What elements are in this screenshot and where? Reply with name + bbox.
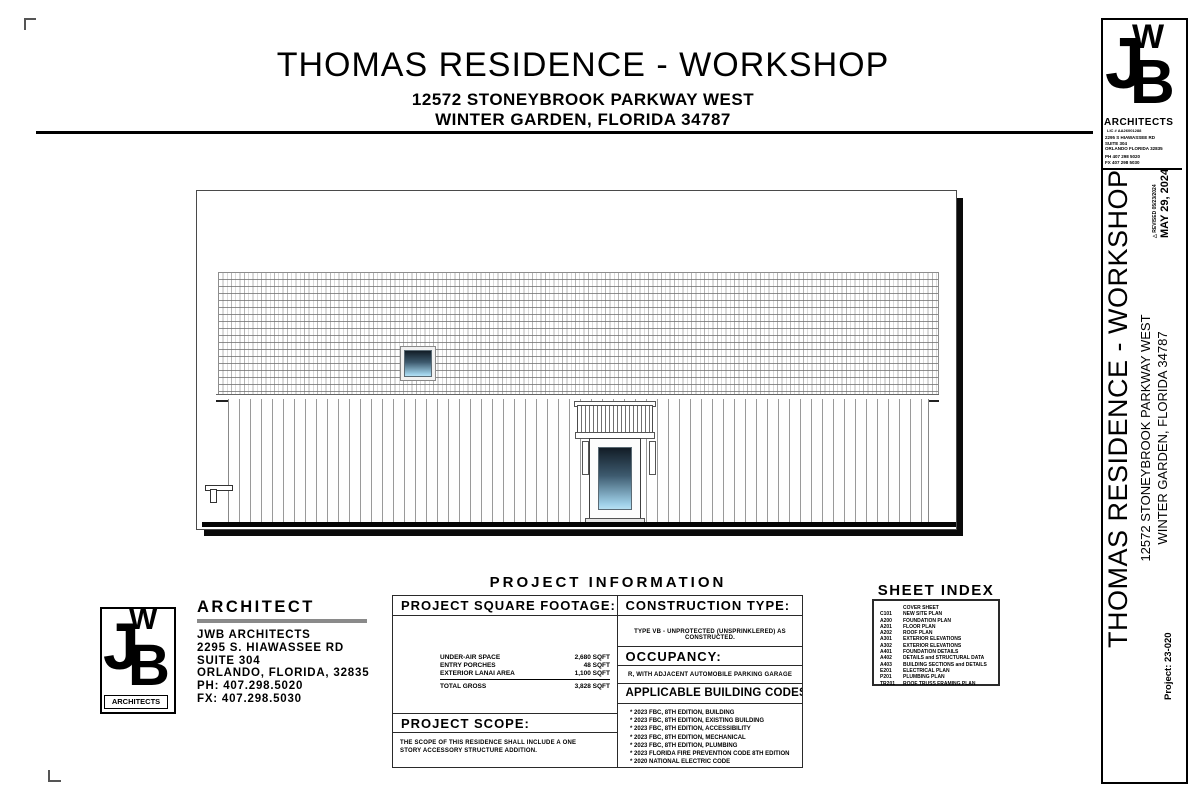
sheet-index-row: TR201 ROOF TRUSS FRAMING PLAN [880,681,998,687]
titleblock-logo-letter-b: B [1130,52,1175,114]
building-code-item: * 2023 FBC, 8TH EDITION, BUILDING [630,709,802,717]
building-code-item: * 2023 FBC, 8TH EDITION, ACCESSIBILITY [630,725,802,733]
code-bullet: * [630,710,632,716]
door-side-bracket-right [649,441,656,475]
titleblock-project-address: 12572 STONEYBROOK PARKWAY WEST WINTER GA… [1138,228,1171,648]
code-text: 2020 NATIONAL ELECTRIC CODE [634,759,730,765]
titleblock-license: LIC # AA26001288 [1107,128,1141,133]
sqft-label: EXTERIOR LANAI AREA [440,670,515,678]
scupper-detail-vertical [210,489,217,503]
entry-door [589,438,641,522]
building-codes-heading: APPLICABLE BUILDING CODES: [617,683,804,704]
project-address-line1: 12572 STONEYBROOK PARKWAY WEST [183,90,983,110]
building-code-item: * 2023 FBC, 8TH EDITION, PLUMBING [630,742,802,750]
sqft-label: ENTRY PORCHES [440,662,496,670]
code-bullet: * [630,735,632,741]
square-footage-total-row: TOTAL GROSS 3,828 SQFT [440,683,610,691]
architect-address1: 2295 S. HIAWASSEE RD [197,642,369,655]
architect-heading: ARCHITECT [197,598,315,617]
architect-firm: JWB ARCHITECTS [197,629,369,642]
titleblock-address3: ORLANDO FLORIDA 32835 [1105,146,1163,152]
code-text: 2023 FBC, 8TH EDITION, BUILDING [634,710,734,716]
code-bullet: * [630,751,632,757]
occupancy-heading: OCCUPANCY: [617,646,804,667]
project-scope-text: THE SCOPE OF THIS RESIDENCE SHALL INCLUD… [400,740,590,755]
building-codes-list: * 2023 FBC, 8TH EDITION, BUILDING * 2023… [630,709,802,766]
sheet-name: ROOF TRUSS FRAMING PLAN [903,681,976,687]
square-footage-rows: UNDER-AIR SPACE 2,680 SQFT ENTRY PORCHES… [440,654,610,678]
square-footage-total-rule [440,679,610,680]
entry-door-glass [598,447,632,510]
titleblock-project-address2: WINTER GARDEN, FLORIDA 34787 [1155,228,1172,648]
building-code-item: * 2020 NATIONAL ELECTRIC CODE [630,758,802,766]
code-bullet: * [630,726,632,732]
architect-address2: SUITE 304 [197,655,369,668]
code-text: 2023 FBC, 8TH EDITION, MECHANICAL [634,735,746,741]
ground-line [202,522,956,527]
titleblock-fax: FX 407 298 5030 [1105,160,1140,166]
code-text: 2023 FBC, 8TH EDITION, ACCESSIBILITY [634,726,751,732]
building-code-item: * 2023 FLORIDA FIRE PREVENTION CODE 8TH … [630,750,802,758]
project-address-line2: WINTER GARDEN, FLORIDA 34787 [183,110,983,130]
square-footage-row: EXTERIOR LANAI AREA 1,100 SQFT [440,670,610,678]
elevation-drawing-frame [196,190,957,530]
header-divider [36,131,1093,134]
code-text: 2023 FLORIDA FIRE PREVENTION CODE 8TH ED… [634,751,789,757]
code-bullet: * [630,759,632,765]
square-footage-table: UNDER-AIR SPACE 2,680 SQFT ENTRY PORCHES… [440,654,610,691]
titleblock-phone: PH 407 298 5020 [1105,154,1140,160]
sqft-total-label: TOTAL GROSS [440,683,486,691]
door-side-bracket-left [582,441,589,475]
titleblock-firm-label: ARCHITECTS [1104,117,1172,128]
sheet-index-box: COVER SHEET C101 NEW SITE PLAN A200 FOUN… [872,599,1000,686]
jwb-logo-label: ARCHITECTS [104,695,168,709]
occupancy-text: R, WITH ADJACENT AUTOMOBILE PARKING GARA… [621,672,799,678]
jwb-logo-letter-b: B [128,637,170,695]
architect-address3: ORLANDO, FLORIDA, 32835 [197,667,369,680]
construction-type-text: TYPE VB - UNPROTECTED (UNSPRINKLERED) AS… [621,629,799,641]
small-window [400,346,436,381]
revision-text: REVISED 05/23/2024 [1152,184,1158,232]
sheet-code: TR201 [880,681,903,687]
sqft-value: 1,100 SQFT [575,670,610,678]
small-window-glass [404,350,432,377]
code-bullet: * [630,718,632,724]
architect-info: JWB ARCHITECTS 2295 S. HIAWASSEE RD SUIT… [197,629,369,706]
titleblock-address1: 2295 S HIAWASSEE RD [1105,135,1163,141]
code-text: 2023 FBC, 8TH EDITION, PLUMBING [634,743,737,749]
cover-sheet: THOMAS RESIDENCE - WORKSHOP 12572 STONEY… [0,0,1200,800]
code-bullet: * [630,743,632,749]
architect-phone: PH: 407.298.5020 [197,680,369,693]
building-code-item: * 2023 FBC, 8TH EDITION, EXISTING BUILDI… [630,717,802,725]
corner-mark-bottom-left-h [48,780,61,782]
architect-fax: FX: 407.298.5030 [197,693,369,706]
titleblock-contact: PH 407 298 5020 FX 407 298 5030 [1105,154,1140,165]
sqft-value: 2,680 SQFT [575,654,610,662]
square-footage-row: UNDER-AIR SPACE 2,680 SQFT [440,654,610,662]
construction-type-heading: CONSTRUCTION TYPE: [617,595,804,616]
jwb-logo: W J B ARCHITECTS [100,607,176,714]
code-text: 2023 FBC, 8TH EDITION, EXISTING BUILDING [634,718,764,724]
project-information-title: PROJECT INFORMATION [408,574,808,591]
square-footage-row: ENTRY PORCHES 48 SQFT [440,662,610,670]
titleblock-project-title: THOMAS RESIDENCE - WORKSHOP [1103,228,1134,648]
square-footage-heading: PROJECT SQUARE FOOTAGE: [392,595,618,616]
sqft-label: UNDER-AIR SPACE [440,654,500,662]
titleblock-address: 2295 S HIAWASSEE RD SUITE 304 ORLANDO FL… [1105,135,1163,152]
project-scope-heading: PROJECT SCOPE: [392,713,618,734]
shingle-roof-face [218,272,939,396]
titleblock-project-address1: 12572 STONEYBROOK PARKWAY WEST [1138,228,1155,648]
corner-mark-top-left-v [24,18,26,30]
project-number: Project: 23-020 [1163,632,1174,700]
sqft-total-value: 3,828 SQFT [575,683,610,691]
page-title: THOMAS RESIDENCE - WORKSHOP [183,46,983,85]
sqft-value: 48 SQFT [584,662,610,670]
door-pediment [577,405,653,434]
sheet-index-title: SHEET INDEX [868,582,1004,599]
architect-heading-underline [197,619,367,623]
building-code-item: * 2023 FBC, 8TH EDITION, MECHANICAL [630,734,802,742]
